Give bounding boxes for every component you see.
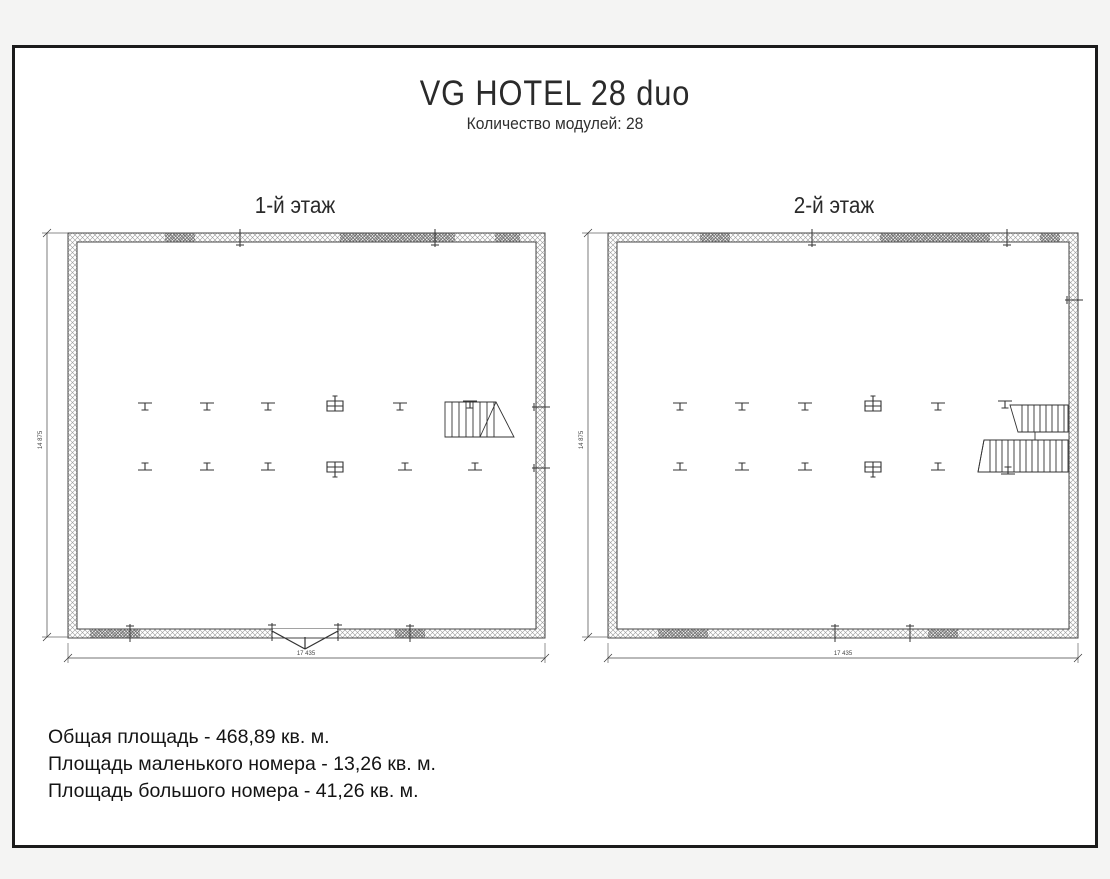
- page-title: VG HOTEL 28 duo: [67, 74, 1044, 114]
- floor-label-2: 2-й этаж: [604, 192, 1065, 219]
- note-small-room-area: Площадь маленького номера - 13,26 кв. м.: [48, 751, 648, 777]
- dimension-width-label: 17 435: [297, 651, 316, 657]
- window-segment: [340, 233, 455, 242]
- window-segment: [700, 233, 730, 242]
- dimension-height-label: 14 875: [38, 430, 44, 449]
- dimension-height-label: 14 875: [579, 430, 585, 449]
- window-segment: [1040, 233, 1060, 242]
- window-segment: [90, 629, 140, 638]
- dimension-height-2: 14 875: [579, 229, 608, 641]
- note-large-room-area: Площадь большого номера - 41,26 кв. м.: [48, 778, 648, 804]
- window-segment: [928, 629, 958, 638]
- floor-label-1: 1-й этаж: [57, 192, 534, 219]
- window-segment: [495, 233, 520, 242]
- window-segment: [658, 629, 708, 638]
- floor-plan-2-drawing: 14 875 17 435: [578, 225, 1090, 675]
- floor-plan-1-drawing: 14 875 17 435: [30, 225, 560, 675]
- page-subtitle: Количество модулей: 28: [44, 114, 1065, 134]
- dimension-width-2: 17 435: [604, 643, 1082, 663]
- window-segment: [165, 233, 195, 242]
- exterior-walls-2: [608, 233, 1078, 638]
- dimension-height-1: 14 875: [38, 229, 68, 641]
- dimension-width-1: 17 435: [64, 643, 549, 663]
- dimension-width-label: 17 435: [834, 651, 853, 657]
- area-notes: Общая площадь - 468,89 кв. м. Площадь ма…: [48, 724, 648, 805]
- window-segment: [880, 233, 990, 242]
- note-total-area: Общая площадь - 468,89 кв. м.: [48, 724, 648, 750]
